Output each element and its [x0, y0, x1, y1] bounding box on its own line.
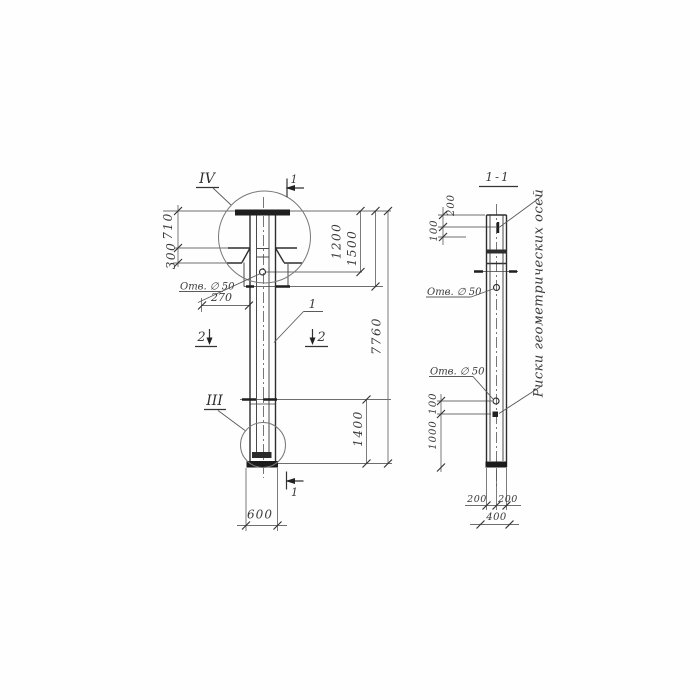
section-mark-2-right: 2 [316, 330, 325, 345]
dim-400: 400 [485, 512, 507, 523]
shaft-callout-leader [274, 312, 323, 343]
section-bottom-plate [486, 462, 508, 468]
dim-1200: 1200 [330, 223, 344, 260]
dim-1400: 1400 [351, 410, 365, 447]
drawing-canvas: IV 1 2 2 1 III 1 Отв. ∅ 50 710 300 270 1… [0, 0, 700, 700]
dim-300: 300 [164, 242, 178, 269]
elevation-view: IV 1 2 2 1 III 1 Отв. ∅ 50 710 300 270 1… [161, 171, 392, 531]
detail-mark-III-leader [218, 411, 245, 431]
section-mark-1-top: 1 [291, 173, 298, 186]
column-outline [227, 216, 302, 462]
joint-weld-marks [242, 287, 290, 400]
detail-circle-bottom [241, 423, 286, 468]
dim-100-lower: 100 [428, 392, 439, 414]
dim-200-bottom-right: 200 [497, 494, 518, 505]
section-2-right-arrow [310, 338, 316, 346]
hole-circle [260, 269, 266, 275]
detail-mark-IV-leader [213, 188, 231, 205]
scanned-drawing-page: IV 1 2 2 1 III 1 Отв. ∅ 50 710 300 270 1… [0, 0, 700, 700]
section-title: 1-1 [485, 170, 510, 184]
section-mark-2-left: 2 [196, 330, 205, 345]
shaft-callout-label: 1 [309, 297, 317, 311]
dim-600: 600 [247, 508, 273, 522]
axis-riska-square [493, 412, 499, 418]
dim-1000: 1000 [428, 420, 439, 449]
section-mark-1-bottom: 1 [291, 486, 298, 499]
dim-710: 710 [161, 212, 175, 239]
section-hole-label-lower: Отв. ∅ 50 [430, 367, 485, 378]
section-joint-band [487, 250, 507, 254]
axes-note: Риски геометрических осей [532, 189, 547, 399]
dim-1500: 1500 [345, 230, 359, 267]
section-view: 1-1 Отв. ∅ 50 Отв. ∅ 50 200 100 100 1000… [426, 170, 547, 529]
section-2-left-arrow [207, 338, 213, 346]
section-hole-lower [493, 398, 499, 404]
detail-mark-IV: IV [198, 171, 217, 187]
cap-plate [235, 210, 290, 216]
axes-note-leader-bottom [499, 387, 540, 414]
detail-mark-III: III [205, 393, 223, 409]
dim-200-bottom-left: 200 [466, 494, 487, 505]
dim-270: 270 [210, 291, 232, 304]
dim-200-top: 200 [446, 194, 457, 217]
dimension-ticks [174, 207, 392, 530]
dim-7760: 7760 [369, 317, 384, 355]
bottom-inner-plug [252, 452, 272, 458]
dim-100-top: 100 [429, 219, 440, 241]
